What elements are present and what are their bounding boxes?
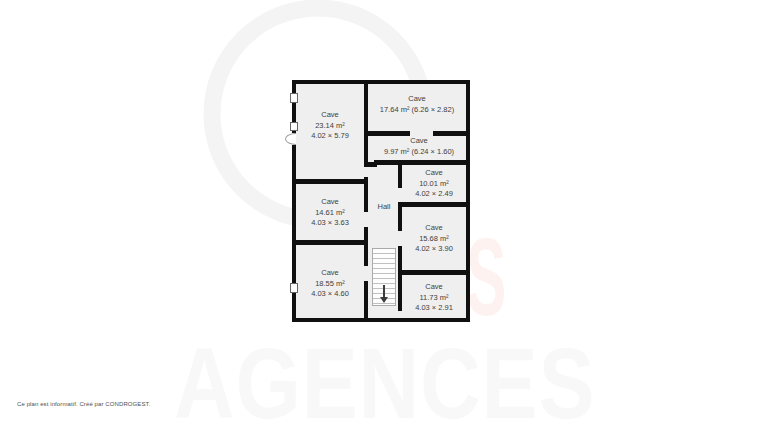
room-label-cave-14: Cave 14.61 m² 4.03 × 3.63 xyxy=(296,197,364,229)
room-area: 11.73 m² xyxy=(402,293,466,304)
wall-segment xyxy=(364,227,368,266)
room-label-cave-15: Cave 15.68 m² 4.02 × 3.90 xyxy=(402,223,466,255)
plan-disclaimer: Ce plan est informatif. Créé par CONDROG… xyxy=(17,401,150,407)
room-name: Cave xyxy=(296,197,364,208)
room-dims: 4.03 × 4.60 xyxy=(296,289,364,300)
room-dims: 4.03 × 3.63 xyxy=(296,218,364,229)
room-dims: 4.03 × 2.91 xyxy=(402,303,466,314)
room-name: Cave xyxy=(402,223,466,234)
room-name: Cave xyxy=(402,168,466,179)
room-area: 15.68 m² xyxy=(402,234,466,245)
room-name: Cave xyxy=(296,110,364,121)
room-label-cave-11: Cave 11.73 m² 4.03 × 2.91 xyxy=(402,282,466,314)
room-label-cave-23: Cave 23.14 m² 4.02 × 5.79 xyxy=(296,110,364,142)
window-symbol xyxy=(290,93,298,103)
watermark-brand-text: AGENCES xyxy=(174,333,595,432)
wall-segment xyxy=(398,202,466,207)
room-dims: 4.02 × 3.90 xyxy=(402,244,466,255)
wall-segment xyxy=(292,80,470,84)
room-dims: 4.02 × 2.49 xyxy=(402,189,466,200)
room-area: 18.55 m² xyxy=(296,279,364,290)
room-name: Cave xyxy=(296,268,364,279)
room-area: 17.64 m² (6.26 × 2.82) xyxy=(368,105,466,116)
room-name: Cave xyxy=(372,136,466,147)
wall-segment xyxy=(374,160,466,165)
room-label-cave-18: Cave 18.55 m² 4.03 × 4.60 xyxy=(296,268,364,300)
wall-segment xyxy=(364,177,368,212)
room-label-cave-9: Cave 9.97 m² (6.24 × 1.60) xyxy=(372,136,466,157)
door-arc xyxy=(285,133,296,145)
wall-segment xyxy=(296,179,364,184)
wall-segment xyxy=(364,281,368,318)
room-dims: 4.02 × 5.79 xyxy=(296,131,364,142)
wall-segment xyxy=(296,240,364,245)
stairs-arrow-head-icon xyxy=(380,297,388,303)
room-label-cave-10: Cave 10.01 m² 4.02 × 2.49 xyxy=(402,168,466,200)
room-area: 14.61 m² xyxy=(296,208,364,219)
room-label-cave-17: Cave 17.64 m² (6.26 × 2.82) xyxy=(368,94,466,115)
room-area: 23.14 m² xyxy=(296,121,364,132)
page: { "plan": { "hall_label": "Hall", "rooms… xyxy=(0,0,768,432)
room-area: 9.97 m² (6.24 × 1.60) xyxy=(372,147,466,158)
room-name: Cave xyxy=(368,94,466,105)
room-area: 10.01 m² xyxy=(402,179,466,190)
room-name: Cave xyxy=(402,282,466,293)
wall-segment xyxy=(292,80,296,93)
hall-label: Hall xyxy=(369,202,399,213)
watermark-letter-s: S xyxy=(466,222,506,332)
wall-segment xyxy=(398,270,466,275)
wall-segment xyxy=(466,80,470,322)
wall-segment xyxy=(292,318,470,322)
